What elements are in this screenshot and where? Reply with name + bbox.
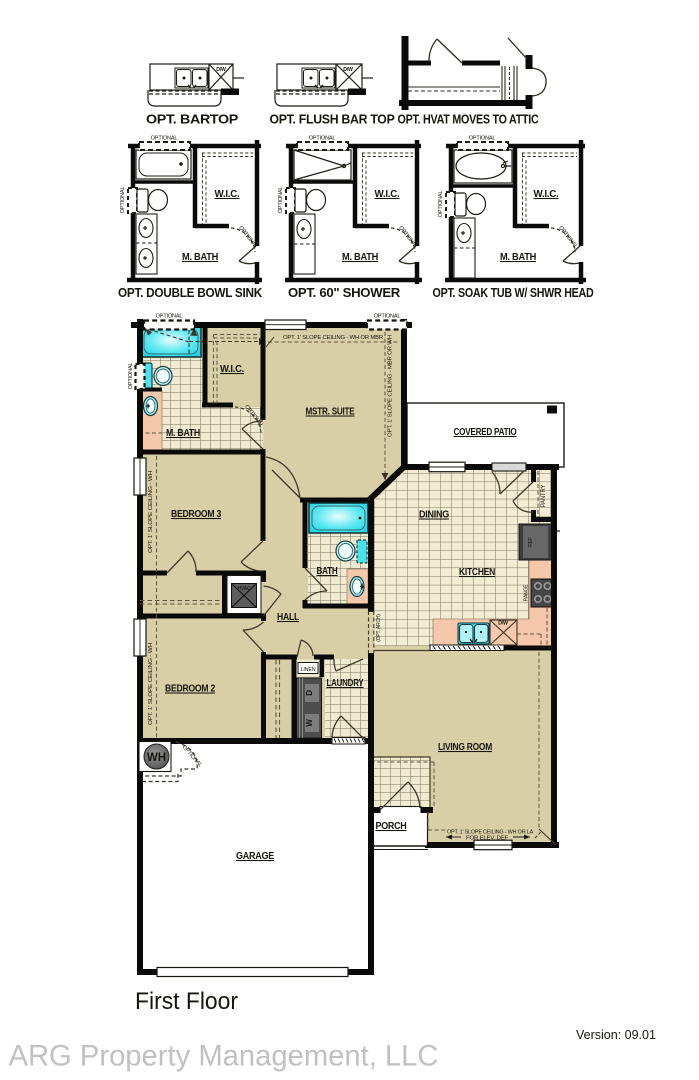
svg-text:OPT. SOAK TUB W/ SHWR HEAD: OPT. SOAK TUB W/ SHWR HEAD (433, 285, 594, 300)
svg-text:M. BATH: M. BATH (166, 427, 200, 439)
svg-text:First Floor: First Floor (135, 988, 238, 1015)
svg-text:PORCH: PORCH (376, 820, 407, 832)
svg-text:OPT. HVAT MOVES TO ATTIC: OPT. HVAT MOVES TO ATTIC (398, 112, 540, 127)
svg-text:OPT. 1' SLOPE CEILING - WH: OPT. 1' SLOPE CEILING - WH (148, 643, 154, 725)
svg-text:HALL: HALL (277, 611, 300, 623)
svg-text:OPTIONAL: OPTIONAL (438, 191, 444, 218)
svg-text:OPTIONAL: OPTIONAL (128, 363, 134, 390)
svg-text:M. BATH: M. BATH (182, 251, 218, 263)
svg-text:BEDROOM 3: BEDROOM 3 (171, 508, 221, 520)
svg-text:D: D (305, 690, 314, 696)
svg-text:DINING: DINING (419, 509, 449, 521)
svg-text:OPTIONAL: OPTIONAL (309, 136, 336, 142)
svg-text:D/W: D/W (343, 67, 353, 73)
svg-text:COVERED PATIO: COVERED PATIO (454, 426, 517, 438)
svg-text:HVAC: HVAC (238, 586, 251, 592)
svg-text:W.I.C.: W.I.C. (215, 188, 240, 200)
svg-text:OPT. FLUSH BAR TOP: OPT. FLUSH BAR TOP (270, 112, 396, 127)
svg-text:OPT. 1' SLOPE CEILING - MBR OR: OPT. 1' SLOPE CEILING - MBR OR WH (388, 335, 394, 437)
svg-text:OPTIONAL: OPTIONAL (120, 187, 126, 214)
svg-text:W.I.C.: W.I.C. (534, 188, 559, 200)
svg-text:LINEN: LINEN (301, 667, 316, 673)
svg-text:FOR ELEV. DEF: FOR ELEV. DEF (466, 836, 509, 842)
svg-text:D/W: D/W (498, 621, 508, 627)
svg-text:OPTIONAL: OPTIONAL (469, 136, 496, 142)
svg-text:D/W: D/W (216, 67, 226, 73)
svg-text:OPTIONAL: OPTIONAL (278, 187, 284, 214)
svg-text:W: W (305, 719, 314, 727)
svg-text:GARAGE: GARAGE (236, 850, 274, 862)
svg-text:(OPT. ARCH): (OPT. ARCH) (376, 614, 382, 642)
svg-text:W.I.C.: W.I.C. (375, 188, 400, 200)
svg-text:LAUNDRY: LAUNDRY (327, 677, 364, 689)
svg-text:OPTIONAL: OPTIONAL (374, 314, 401, 320)
svg-text:OPT. DOUBLE BOWL SINK: OPT. DOUBLE BOWL SINK (118, 285, 263, 300)
svg-text:Version: 09.01: Version: 09.01 (576, 1028, 656, 1042)
svg-text:RANGE: RANGE (524, 584, 530, 602)
svg-text:REF: REF (528, 537, 534, 547)
svg-text:WH: WH (147, 752, 166, 764)
svg-text:MSTR. SUITE: MSTR. SUITE (306, 406, 355, 418)
svg-text:LIVING ROOM: LIVING ROOM (438, 741, 492, 753)
svg-text:ARG Property Management, LLC: ARG Property Management, LLC (9, 1040, 439, 1073)
svg-text:PANTRY: PANTRY (541, 485, 547, 508)
svg-text:BATH: BATH (317, 565, 338, 577)
svg-text:OPTIONAL: OPTIONAL (151, 136, 178, 142)
svg-text:BEDROOM 2: BEDROOM 2 (165, 683, 215, 695)
svg-text:M. BATH: M. BATH (342, 251, 378, 263)
svg-text:OPT. 1' SLOPE CEILING - WH OR: OPT. 1' SLOPE CEILING - WH OR MBR (283, 335, 383, 341)
svg-text:OPT. 60" SHOWER: OPT. 60" SHOWER (288, 285, 401, 300)
svg-text:OPTIONAL: OPTIONAL (156, 314, 183, 320)
svg-text:KITCHEN: KITCHEN (459, 566, 495, 578)
svg-text:OPT. BARTOP: OPT. BARTOP (146, 112, 239, 127)
svg-text:OPT. 1' SLOPE CEILING - WH: OPT. 1' SLOPE CEILING - WH (148, 471, 154, 553)
svg-text:W.I.C.: W.I.C. (220, 363, 244, 375)
svg-text:M. BATH: M. BATH (500, 251, 536, 263)
